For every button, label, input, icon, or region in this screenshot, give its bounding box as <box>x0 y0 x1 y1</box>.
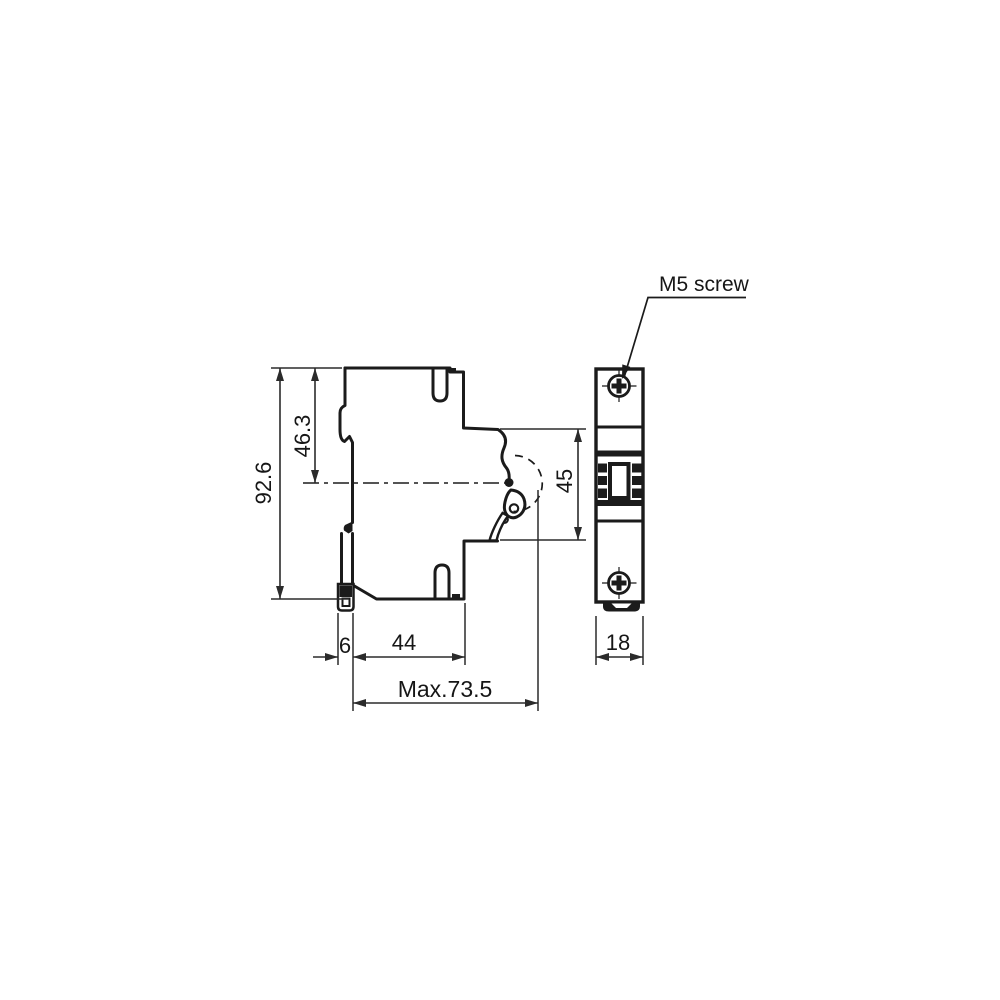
dim-overall-height: 92.6 <box>251 368 284 599</box>
toggle-handle <box>490 478 525 541</box>
m5-screw-label: M5 screw <box>659 273 750 296</box>
side-view <box>303 368 542 611</box>
side-view-outline-lower <box>354 541 498 599</box>
overall-height-label: 92.6 <box>251 462 276 505</box>
circuit-breaker-dimension-drawing: 92.6 46.3 45 6 44 <box>0 0 1000 1000</box>
side-view-back-profile <box>340 368 353 523</box>
m5-screw-callout: M5 screw <box>622 273 750 379</box>
toggle-front <box>598 464 642 499</box>
technical-drawing: 92.6 46.3 45 6 44 <box>0 0 1000 1000</box>
bottom-edge-notch <box>452 594 460 599</box>
dim-recess-height: 45 <box>552 429 582 540</box>
clip-protrusion-label: 6 <box>339 633 351 658</box>
dim-clip-protrusion: 6 <box>313 633 351 661</box>
side-view-outline-upper <box>345 368 509 478</box>
dimensions: 92.6 46.3 45 6 44 <box>251 368 643 711</box>
max-depth-label: Max.73.5 <box>398 676 493 702</box>
din-clip-hook <box>344 522 353 534</box>
top-slot <box>433 368 447 401</box>
dim-top-to-center: 46.3 <box>290 368 319 483</box>
front-clip-tab <box>603 604 640 612</box>
top-to-center-label: 46.3 <box>290 415 315 458</box>
handle-lever <box>490 513 509 541</box>
toggle-front-handle <box>610 464 629 498</box>
bottom-slot <box>435 565 449 599</box>
callout-leader-line <box>625 298 747 377</box>
top-edge-notch <box>449 368 456 373</box>
module-width-label: 18 <box>606 630 630 655</box>
dim-module-width: 18 <box>596 630 643 661</box>
dim-body-depth: 44 <box>353 630 465 661</box>
recess-height-label: 45 <box>552 469 577 493</box>
body-depth-label: 44 <box>392 630 416 655</box>
dim-max-depth: Max.73.5 <box>353 676 538 707</box>
din-clip-foot <box>338 584 354 611</box>
front-view <box>596 369 643 612</box>
